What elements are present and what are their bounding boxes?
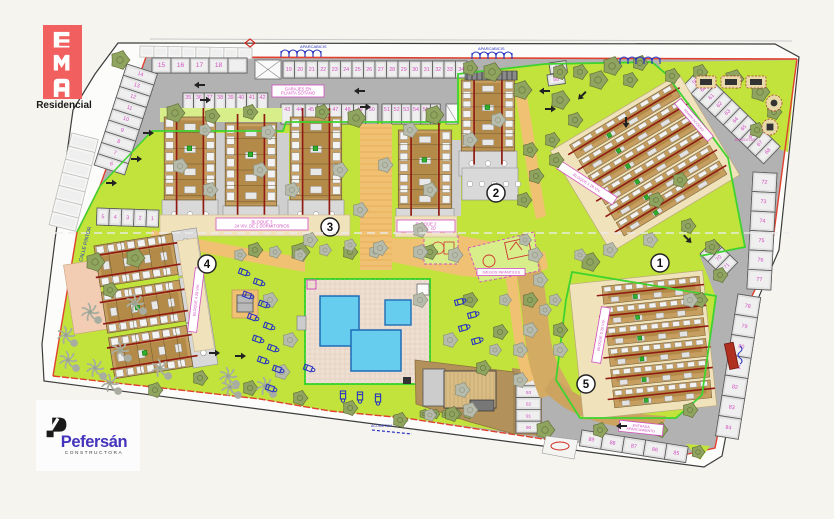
svg-text:19: 19 [286,67,292,73]
svg-text:93: 93 [526,390,532,396]
svg-text:4: 4 [114,215,117,221]
svg-text:50: 50 [369,107,375,113]
svg-text:1: 1 [151,216,154,222]
svg-text:5: 5 [583,379,590,391]
svg-text:79: 79 [741,323,748,330]
svg-text:91: 91 [526,413,532,419]
svg-text:75: 75 [758,238,764,244]
svg-text:86: 86 [651,447,658,454]
svg-text:17: 17 [196,62,204,69]
svg-text:39: 39 [228,95,234,101]
svg-text:16: 16 [177,62,185,69]
svg-text:38: 38 [217,95,223,101]
svg-text:53: 53 [403,107,409,113]
svg-text:31: 31 [424,67,430,73]
svg-text:44: 44 [296,107,302,113]
svg-text:ACOMETIDA: ACOMETIDA [371,424,393,428]
svg-text:30: 30 [412,67,418,73]
svg-text:52: 52 [394,107,400,113]
svg-text:21: 21 [309,67,315,73]
svg-text:4: 4 [204,259,211,271]
svg-text:APARCABICIS: APARCABICIS [300,44,327,49]
svg-text:42: 42 [260,95,266,101]
svg-text:32: 32 [435,67,441,73]
svg-text:83: 83 [728,404,735,411]
svg-text:92: 92 [526,402,532,408]
svg-text:5: 5 [101,214,104,220]
svg-text:89: 89 [588,437,595,444]
svg-text:84: 84 [725,425,732,432]
svg-text:2: 2 [138,216,141,222]
svg-text:29: 29 [401,67,407,73]
svg-text:72: 72 [761,179,767,185]
svg-text:54: 54 [413,107,419,113]
svg-text:43: 43 [284,107,290,113]
svg-text:76: 76 [757,257,763,263]
svg-text:24: 24 [343,67,349,73]
svg-text:28: 28 [389,67,395,73]
svg-text:73: 73 [760,199,766,205]
svg-text:40: 40 [238,95,244,101]
svg-text:45: 45 [308,107,314,113]
svg-text:PLANTA SOTANO: PLANTA SOTANO [281,91,316,96]
svg-text:APARCABICIS: APARCABICIS [478,46,505,51]
svg-text:88: 88 [609,440,616,447]
svg-text:BICICLETAS: BICICLETAS [735,138,756,142]
svg-text:41: 41 [249,95,255,101]
svg-text:35: 35 [185,95,191,101]
svg-text:47: 47 [332,107,338,113]
svg-text:77: 77 [756,277,762,283]
svg-text:3: 3 [126,215,129,221]
svg-text:18: 18 [215,62,223,69]
svg-text:22: 22 [320,67,326,73]
svg-text:24 VIV. DE 2 DORMITORIOS: 24 VIV. DE 2 DORMITORIOS [235,224,290,229]
svg-text:85: 85 [673,450,680,457]
svg-text:82: 82 [731,384,738,391]
svg-text:JUEGOS INFANTILES: JUEGOS INFANTILES [482,270,521,274]
svg-text:15: 15 [158,62,166,69]
svg-text:87: 87 [630,443,637,450]
svg-text:25: 25 [355,67,361,73]
svg-text:78: 78 [744,303,751,310]
svg-text:23: 23 [332,67,338,73]
svg-text:26: 26 [366,67,372,73]
svg-text:33: 33 [447,67,453,73]
svg-text:74: 74 [759,218,765,224]
svg-text:51: 51 [384,107,390,113]
svg-text:20: 20 [297,67,303,73]
svg-text:27: 27 [378,67,384,73]
svg-text:2: 2 [493,188,499,200]
svg-text:1: 1 [657,258,664,270]
svg-text:90: 90 [526,425,532,431]
